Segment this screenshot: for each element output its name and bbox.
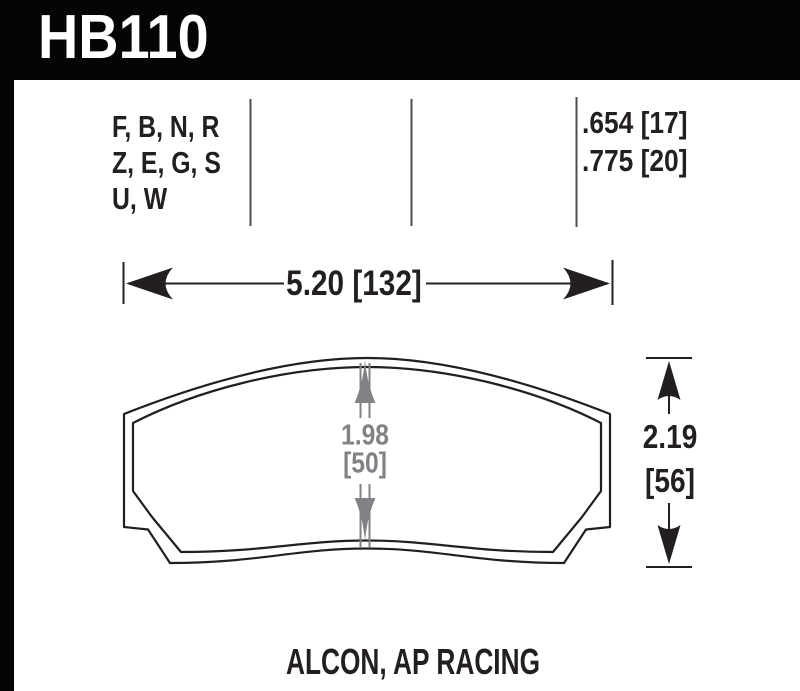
compound-codes-line: F, B, N, R — [112, 109, 221, 145]
compound-codes-line: U, W — [112, 181, 221, 217]
compound-codes-line: Z, E, G, S — [112, 145, 221, 181]
center-height-mm-label: [50] — [343, 448, 387, 481]
overall-height-mm-label: [56] — [645, 462, 695, 500]
overall-width-label: 5.20 [132] — [286, 264, 422, 304]
overall-height-in-label: 2.19 — [643, 418, 698, 456]
spec-sheet: HB110 — [0, 0, 800, 691]
pad-thickness-line: .775 [20] — [582, 142, 687, 180]
arrowhead-up-icon — [658, 361, 681, 400]
pad-thickness-line: .654 [17] — [582, 104, 687, 142]
arrowhead-down-icon — [658, 525, 681, 564]
gray-arrowhead-down-icon — [355, 498, 376, 541]
application-label: ALCON, AP RACING — [286, 641, 540, 683]
pad-thickness-block: .654 [17] .775 [20] — [582, 104, 687, 180]
compound-codes-block: F, B, N, R Z, E, G, S U, W — [112, 109, 221, 217]
column-separators — [251, 97, 577, 227]
